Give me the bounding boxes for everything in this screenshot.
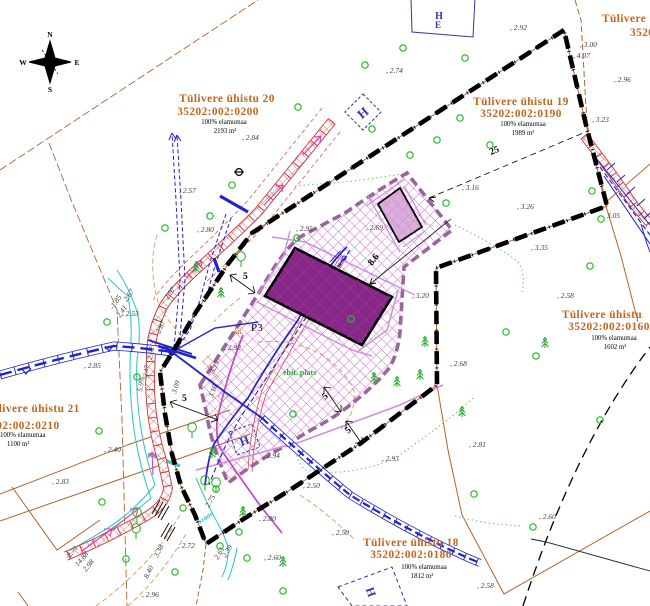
svg-text:, 2.80: , 2.80	[259, 514, 276, 523]
svg-text:35202:002:0160: 35202:002:0160	[568, 321, 650, 333]
svg-text:, 3.20: , 3.20	[412, 291, 429, 300]
svg-text:3520: 3520	[630, 27, 650, 39]
svg-text:, 2.58: , 2.58	[557, 291, 574, 300]
svg-text:, 2.80: , 2.80	[197, 225, 214, 234]
svg-text:, 2.50: , 2.50	[332, 528, 349, 537]
svg-text:35202:002:0180: 35202:002:0180	[370, 549, 452, 561]
svg-text:, 2.81: , 2.81	[469, 440, 486, 449]
svg-text:, 2.85: , 2.85	[84, 361, 101, 370]
svg-text:, 3.35: , 3.35	[531, 243, 548, 252]
svg-text:100% elamumaa: 100% elamumaa	[500, 121, 545, 128]
svg-text:, 3.16: , 3.16	[462, 183, 479, 192]
svg-text:1989 m²: 1989 m²	[512, 130, 535, 137]
svg-text:, 3.26: , 3.26	[517, 202, 534, 211]
svg-text:, 2.69: , 2.69	[366, 223, 383, 232]
svg-text:E: E	[74, 58, 79, 67]
svg-text:S: S	[48, 85, 52, 94]
svg-text:, 2.83: , 2.83	[52, 477, 69, 486]
svg-text:, 2.57: , 2.57	[179, 186, 196, 195]
svg-text:, 2.94: , 2.94	[263, 451, 280, 460]
svg-text:, 4.07: , 4.07	[573, 51, 590, 60]
svg-text:1602 m²: 1602 m²	[604, 344, 627, 351]
svg-text:, 2.74: , 2.74	[386, 66, 403, 75]
svg-text:, 2.40: , 2.40	[104, 445, 121, 454]
svg-text:, 3.23: , 3.23	[592, 115, 609, 124]
svg-text:, 2.58: , 2.58	[477, 581, 494, 590]
svg-text:P3: P3	[251, 322, 263, 334]
svg-text:100% elamumaa: 100% elamumaa	[0, 432, 45, 439]
svg-text:3.05: 3.05	[606, 211, 620, 220]
svg-text:, 3.00: , 3.00	[580, 40, 597, 49]
svg-text:35202:002:0200: 35202:002:0200	[177, 106, 259, 118]
svg-text:kü.: kü.	[234, 327, 244, 336]
svg-text:, 2.60: , 2.60	[264, 553, 281, 562]
svg-text:, 2.84: , 2.84	[242, 133, 259, 142]
svg-text:5: 5	[243, 272, 248, 282]
svg-text:E: E	[435, 20, 441, 30]
svg-text:ehit. plats: ehit. plats	[283, 368, 316, 377]
svg-text:W: W	[19, 58, 27, 67]
svg-text:, 2.72: , 2.72	[178, 541, 195, 550]
svg-text:, 2.50: , 2.50	[303, 481, 320, 490]
svg-text:Tülivere ühistu 20: Tülivere ühistu 20	[179, 93, 275, 105]
svg-text:, 2.92: , 2.92	[224, 343, 241, 352]
svg-text:1812 m²: 1812 m²	[411, 573, 434, 580]
svg-text:Tülivere ühistu: Tülivere ühistu	[562, 309, 642, 321]
svg-text:100% elamumaa: 100% elamumaa	[201, 119, 246, 126]
svg-text:, 2.96: , 2.96	[142, 590, 159, 599]
svg-text:35202:002:0210: 35202:002:0210	[0, 420, 60, 432]
svg-text:Tülivere ühistu 19: Tülivere ühistu 19	[473, 96, 569, 108]
svg-text:, 2.92: , 2.92	[510, 23, 527, 32]
svg-text:, 2.68: , 2.68	[450, 359, 467, 368]
svg-text:Tülivere: Tülivere	[602, 13, 646, 25]
svg-text:N: N	[47, 30, 53, 39]
svg-text:1100 m²: 1100 m²	[7, 441, 29, 448]
svg-text:35202:002:0190: 35202:002:0190	[480, 108, 562, 120]
svg-text:100% elamumaa: 100% elamumaa	[401, 564, 446, 571]
svg-text:2193 m²: 2193 m²	[214, 128, 237, 135]
svg-text:, 2.95: , 2.95	[296, 224, 313, 233]
svg-text:Tülivere ühistu 18: Tülivere ühistu 18	[363, 537, 459, 549]
svg-text:, 2.93: , 2.93	[382, 454, 399, 463]
svg-text:, 2.96: , 2.96	[614, 75, 631, 84]
svg-text:100% elamumaa: 100% elamumaa	[591, 335, 636, 342]
svg-text:5: 5	[182, 394, 187, 404]
svg-text:, 2.60: , 2.60	[539, 512, 556, 521]
svg-text:Tülivere ühistu 21: Tülivere ühistu 21	[0, 403, 80, 415]
